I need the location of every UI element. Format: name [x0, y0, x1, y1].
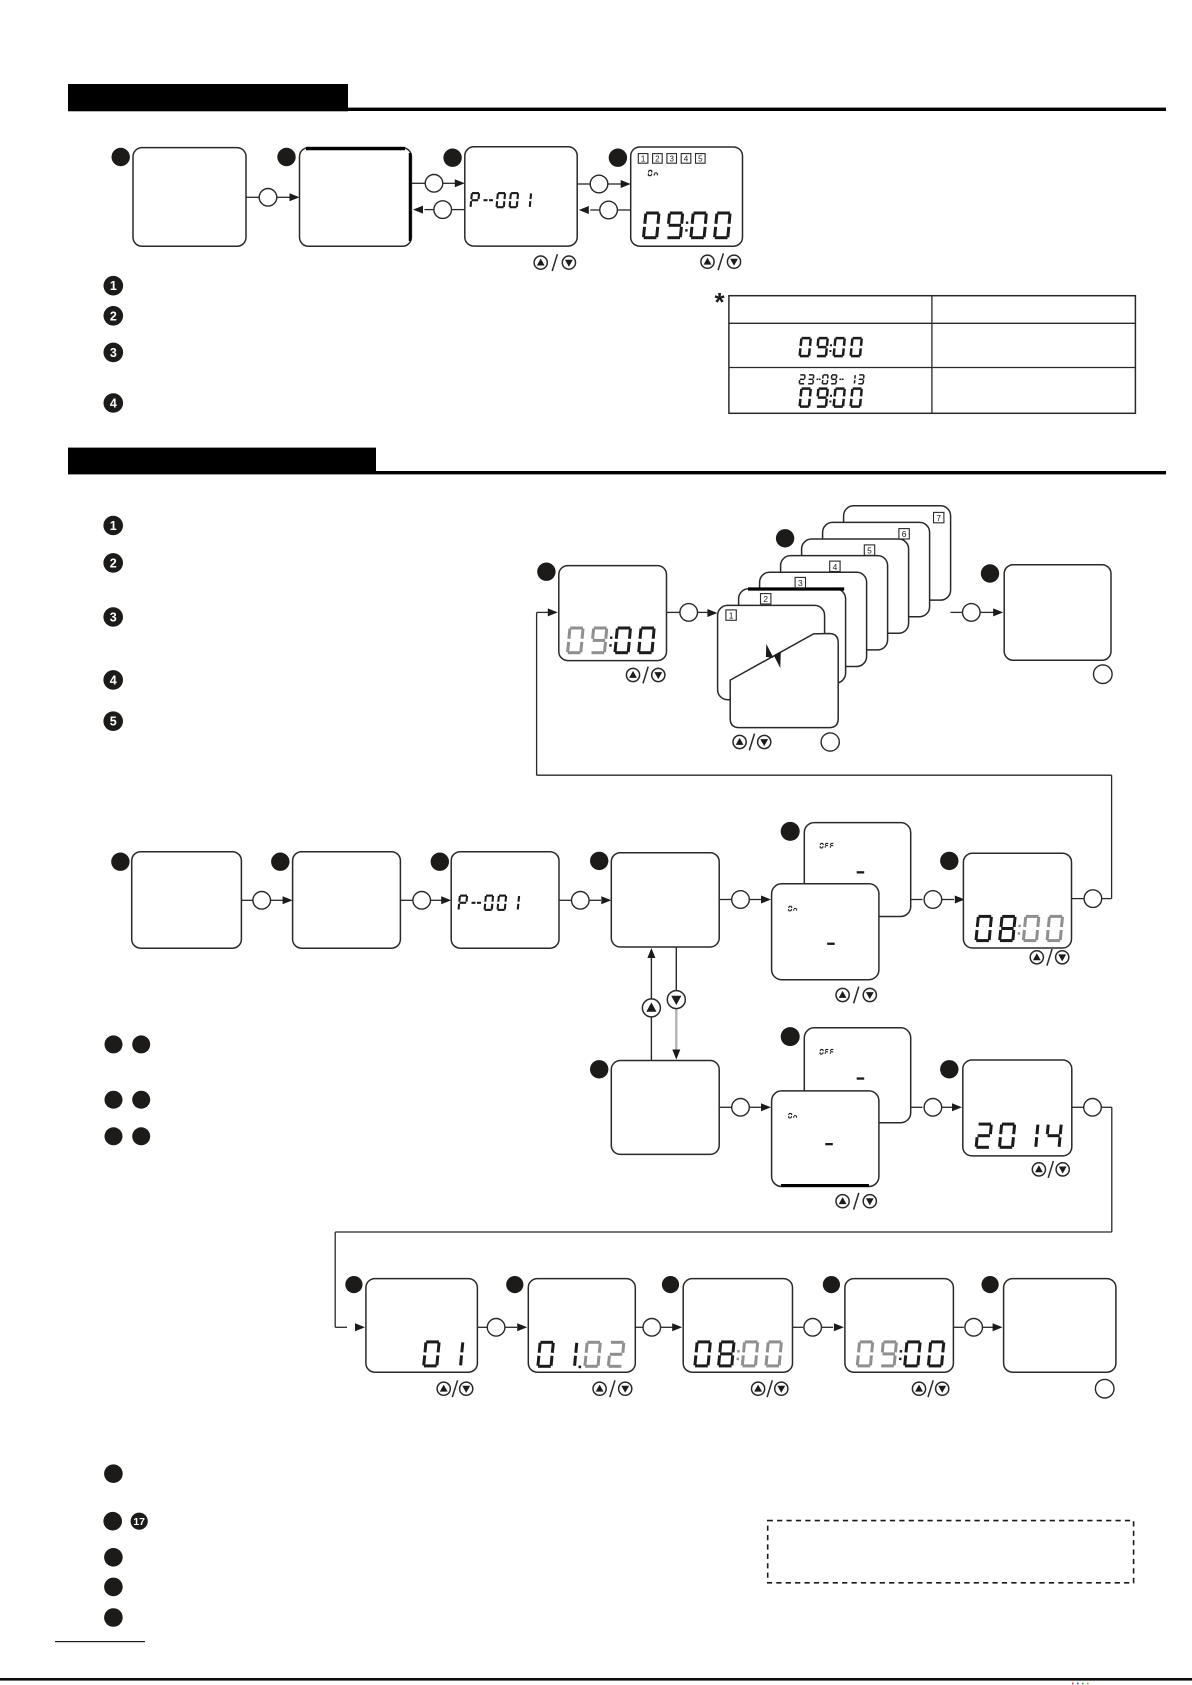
- svg-text:4: 4: [833, 562, 838, 572]
- svg-text:5: 5: [110, 715, 117, 729]
- svg-text:5: 5: [867, 546, 872, 556]
- svg-text:*: *: [715, 287, 726, 317]
- svg-text:1: 1: [110, 279, 117, 293]
- svg-text:2: 2: [655, 154, 660, 163]
- svg-text:2: 2: [110, 556, 117, 570]
- svg-text:1: 1: [641, 154, 646, 163]
- svg-text:1: 1: [729, 611, 734, 621]
- svg-text:5: 5: [698, 154, 703, 163]
- svg-text:1: 1: [110, 519, 117, 533]
- svg-text:17: 17: [133, 1516, 145, 1528]
- svg-text:2: 2: [110, 309, 117, 323]
- svg-text:4: 4: [110, 673, 117, 687]
- svg-text:4: 4: [684, 154, 689, 163]
- svg-text:3: 3: [669, 154, 674, 163]
- svg-text:3: 3: [798, 578, 803, 588]
- svg-text:7: 7: [936, 513, 941, 523]
- svg-text:4: 4: [110, 397, 117, 411]
- svg-text:2: 2: [763, 594, 768, 604]
- svg-text:3: 3: [110, 346, 117, 360]
- svg-text:3: 3: [110, 611, 117, 625]
- svg-text:6: 6: [902, 529, 907, 539]
